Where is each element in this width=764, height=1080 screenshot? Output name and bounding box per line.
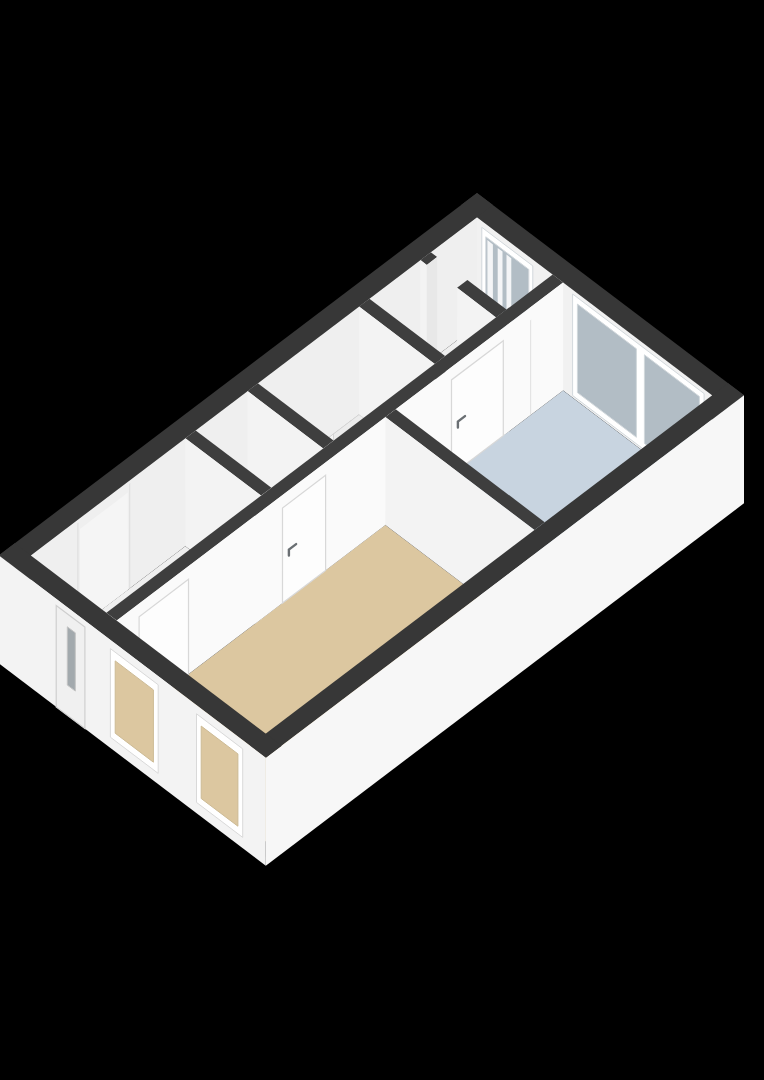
left-wall-seam	[129, 483, 130, 589]
floorplan-3d-view	[0, 0, 764, 1080]
floorplan-scene	[0, 0, 764, 1080]
spine-wall-seam	[530, 320, 531, 416]
entry-door-glass	[67, 627, 75, 691]
